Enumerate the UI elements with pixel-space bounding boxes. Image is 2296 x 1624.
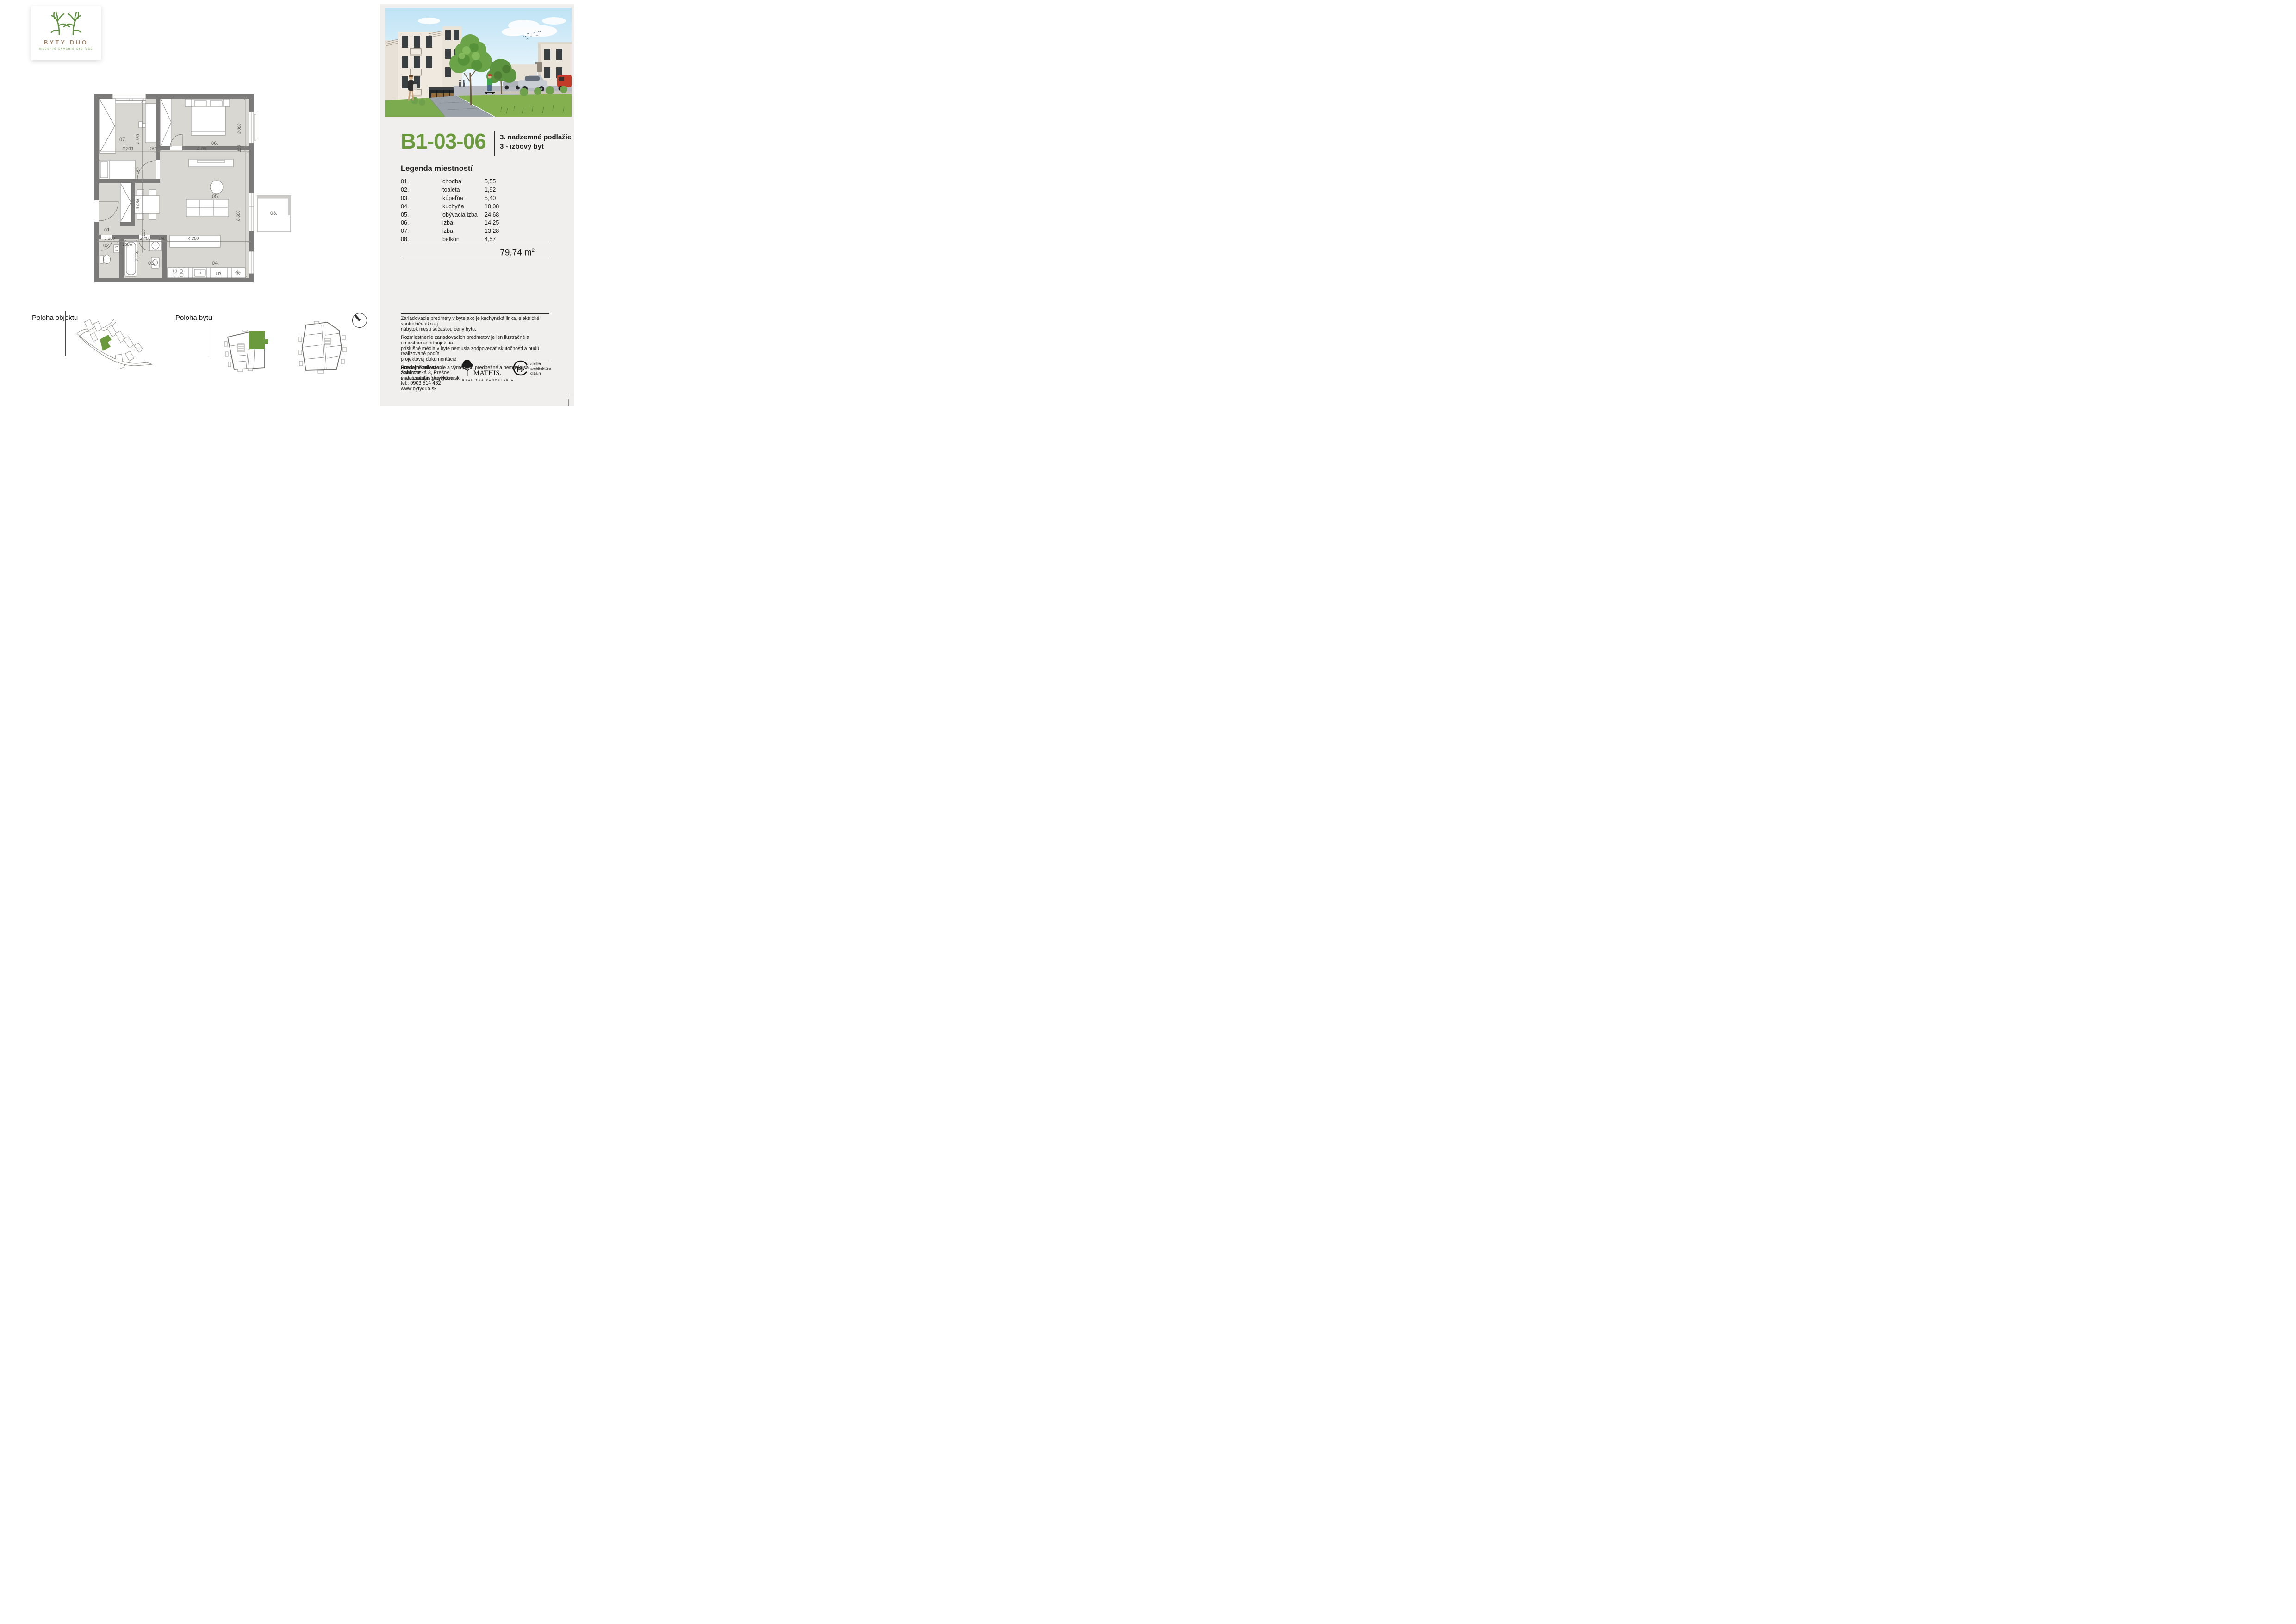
svg-text:150: 150 <box>122 242 129 247</box>
legend-row: 01.chodba5,55 <box>401 177 549 186</box>
room-label-05: 05. <box>212 194 219 200</box>
svg-text:2 250: 2 250 <box>135 251 139 262</box>
svg-text:4 150: 4 150 <box>136 134 140 145</box>
building-render-photo <box>385 8 572 117</box>
row-num: 08. <box>401 236 442 243</box>
row-area: 1,92 <box>485 187 549 193</box>
tree-logo-icon <box>50 11 82 35</box>
mathis-name: MATHIS. <box>473 369 502 377</box>
svg-text:3 050: 3 050 <box>136 199 140 210</box>
row-num: 01. <box>401 178 442 185</box>
room-label-07: 07. <box>119 137 126 143</box>
svg-text:3 000: 3 000 <box>237 124 242 134</box>
info-panel: B1-03-06 3. nadzemné podlažie 3 - izbový… <box>380 4 574 406</box>
row-area: 24,68 <box>485 212 549 218</box>
disclaimer-1: Zariaďovacie predmety v byte ako je kuch… <box>401 316 549 332</box>
site-map <box>69 318 168 370</box>
room-label-06: 06. <box>211 141 218 146</box>
row-name: kúpeľňa <box>442 195 485 201</box>
unit-id: B1-03-06 <box>401 131 486 152</box>
mathis-subtitle: REALITNÁ KANCELÁRIA <box>462 379 516 382</box>
crop-mark-v <box>568 399 569 406</box>
contact-web: www.bytyduo.sk <box>401 387 460 392</box>
row-num: 07. <box>401 228 442 234</box>
pj-text: ateliér architektúra dizajn <box>530 362 551 376</box>
brochure-page: BYTY DUO moderné bývanie pre Vás 08. <box>0 0 574 406</box>
north-compass-icon <box>351 312 368 329</box>
room-label-02: 02. <box>103 243 110 249</box>
row-num: 03. <box>401 195 442 201</box>
row-area: 13,28 <box>485 228 549 234</box>
flat-location-label: Poloha bytu <box>175 314 212 322</box>
room-label-08: 08. <box>270 211 277 216</box>
building-floor-plan <box>298 321 349 374</box>
svg-text:6 600: 6 600 <box>236 211 241 221</box>
divider-line-1 <box>65 311 66 356</box>
balcony-08: 08. <box>257 196 291 232</box>
pj-line-1: ateliér <box>530 362 551 366</box>
contact-phone: tel.: 0903 514 462 <box>401 381 460 386</box>
row-name: izba <box>442 219 485 226</box>
room-label-04: 04. <box>212 261 219 266</box>
contact-block: Predajné miesto: Sabinovská 3, Prešov ma… <box>401 365 460 392</box>
row-area: 14,25 <box>485 219 549 226</box>
disclaimer-2: Rozmiestnenie zariaďovacích predmetov je… <box>401 335 549 362</box>
svg-text:2 400: 2 400 <box>140 236 151 241</box>
svg-text:150: 150 <box>136 167 140 174</box>
svg-text:150: 150 <box>141 229 146 236</box>
mathis-tree-icon <box>461 359 473 377</box>
legend-table: 01.chodba5,55 02.toaleta1,92 03.kúpeľňa5… <box>401 177 549 244</box>
row-area: 4,57 <box>485 236 549 243</box>
pj-logo-icon: pj. <box>512 360 529 376</box>
legend-row: 02.toaleta1,92 <box>401 186 549 194</box>
svg-text:1 200: 1 200 <box>105 236 115 241</box>
row-num: 04. <box>401 203 442 210</box>
total-value: 79,74 <box>500 248 522 257</box>
flat-position-plan <box>224 330 275 377</box>
row-area: 5,55 <box>485 178 549 185</box>
svg-text:4 750: 4 750 <box>197 146 208 151</box>
legend-row: 06.izba14,25 <box>401 219 549 227</box>
legend-title: Legenda miestností <box>401 164 473 173</box>
svg-text:150: 150 <box>158 236 165 241</box>
brand-name: BYTY DUO <box>31 39 101 46</box>
legend-row: 07.izba13,28 <box>401 227 549 235</box>
pj-monogram: pj. <box>517 364 524 372</box>
legend-row: 08.balkón4,57 <box>401 235 549 244</box>
row-num: 05. <box>401 212 442 218</box>
legend-row: 03.kúpeľňa5,40 <box>401 194 549 202</box>
legend-row: 04.kuchyňa10,08 <box>401 202 549 211</box>
floor-plan: 08. <box>94 93 296 290</box>
row-name: kuchyňa <box>442 203 485 210</box>
row-name: balkón <box>442 236 485 243</box>
unit-floor: 3. nadzemné podlažie <box>500 133 571 141</box>
row-num: 06. <box>401 219 442 226</box>
svg-text:3 200: 3 200 <box>123 146 133 151</box>
room-label-03: 03. <box>148 261 155 266</box>
legend-row: 05.obývacia izba24,68 <box>401 211 549 219</box>
pj-line-3: dizajn <box>530 371 551 375</box>
mathis-logo: MATHIS. REALITNÁ KANCELÁRIA <box>461 359 516 382</box>
svg-text:150: 150 <box>149 146 156 151</box>
row-name: obývacia izba <box>442 212 485 218</box>
developer-logo-card: BYTY DUO moderné bývanie pre Vás <box>31 6 101 60</box>
row-num: 02. <box>401 187 442 193</box>
total-exp: 2 <box>532 248 535 253</box>
kitchen-ur-label: UR <box>216 272 221 276</box>
unit-header-divider <box>494 131 495 156</box>
svg-text:4 200: 4 200 <box>188 236 199 241</box>
row-name: izba <box>442 228 485 234</box>
row-area: 10,08 <box>485 203 549 210</box>
svg-text:150: 150 <box>237 145 242 152</box>
total-unit: m <box>524 248 532 257</box>
room-label-01: 01. <box>104 227 111 233</box>
retaining-wall <box>492 91 572 94</box>
row-name: chodba <box>442 178 485 185</box>
pj-line-2: architektúra <box>530 366 551 371</box>
total-area: 79,74 m2 <box>401 244 548 256</box>
divider-line-2 <box>208 311 208 356</box>
crop-mark-h <box>570 395 574 395</box>
highlighted-building <box>100 335 112 351</box>
brand-tagline: moderné bývanie pre Vás <box>31 47 101 50</box>
row-name: toaleta <box>442 187 485 193</box>
row-area: 5,40 <box>485 195 549 201</box>
unit-type: 3 - izbový byt <box>500 143 544 150</box>
